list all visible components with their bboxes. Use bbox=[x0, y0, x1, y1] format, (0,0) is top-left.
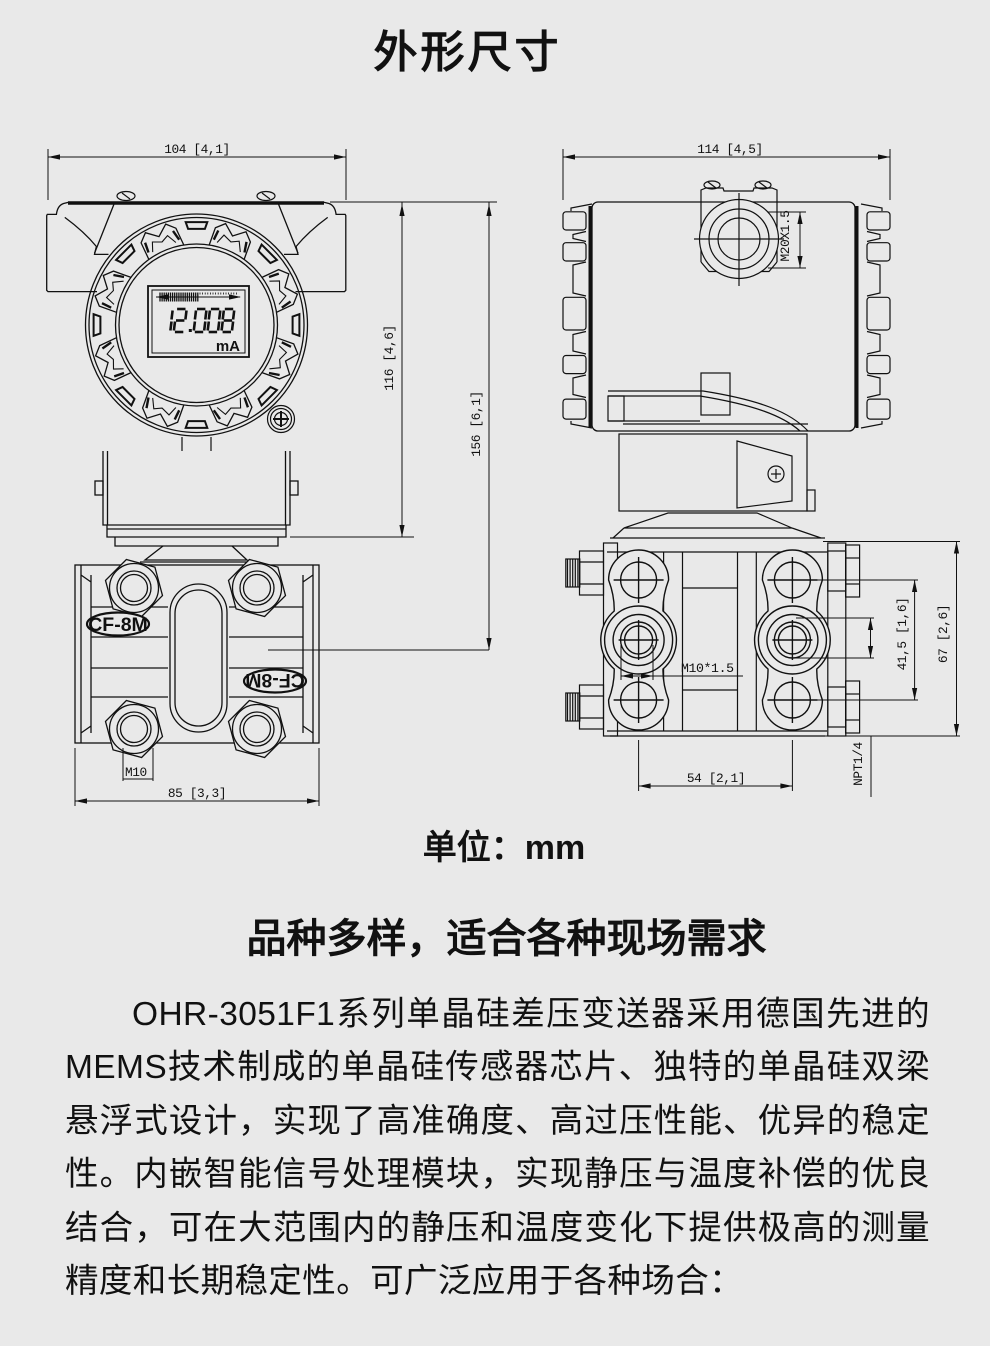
svg-text:NPT1/4: NPT1/4 bbox=[851, 741, 866, 785]
svg-text:mA: mA bbox=[216, 338, 240, 355]
svg-text:54 [2,1]: 54 [2,1] bbox=[687, 771, 745, 786]
svg-text:116 [4,6]: 116 [4,6] bbox=[382, 325, 397, 391]
svg-text:M10: M10 bbox=[125, 765, 147, 780]
svg-text:CF-8M: CF-8M bbox=[245, 669, 305, 691]
svg-text:85 [3,3]: 85 [3,3] bbox=[168, 786, 226, 801]
svg-text:156 [6,1]: 156 [6,1] bbox=[469, 391, 484, 457]
svg-text:114 [4,5]: 114 [4,5] bbox=[697, 142, 763, 157]
svg-text:M20X1.5: M20X1.5 bbox=[778, 211, 793, 262]
svg-text:104 [4,1]: 104 [4,1] bbox=[164, 142, 230, 157]
svg-text:67 [2,6]: 67 [2,6] bbox=[936, 605, 951, 663]
svg-text:CF-8M: CF-8M bbox=[88, 614, 148, 636]
svg-text:41,5 [1,6]: 41,5 [1,6] bbox=[895, 598, 910, 671]
svg-text:M10*1.5: M10*1.5 bbox=[681, 661, 734, 676]
